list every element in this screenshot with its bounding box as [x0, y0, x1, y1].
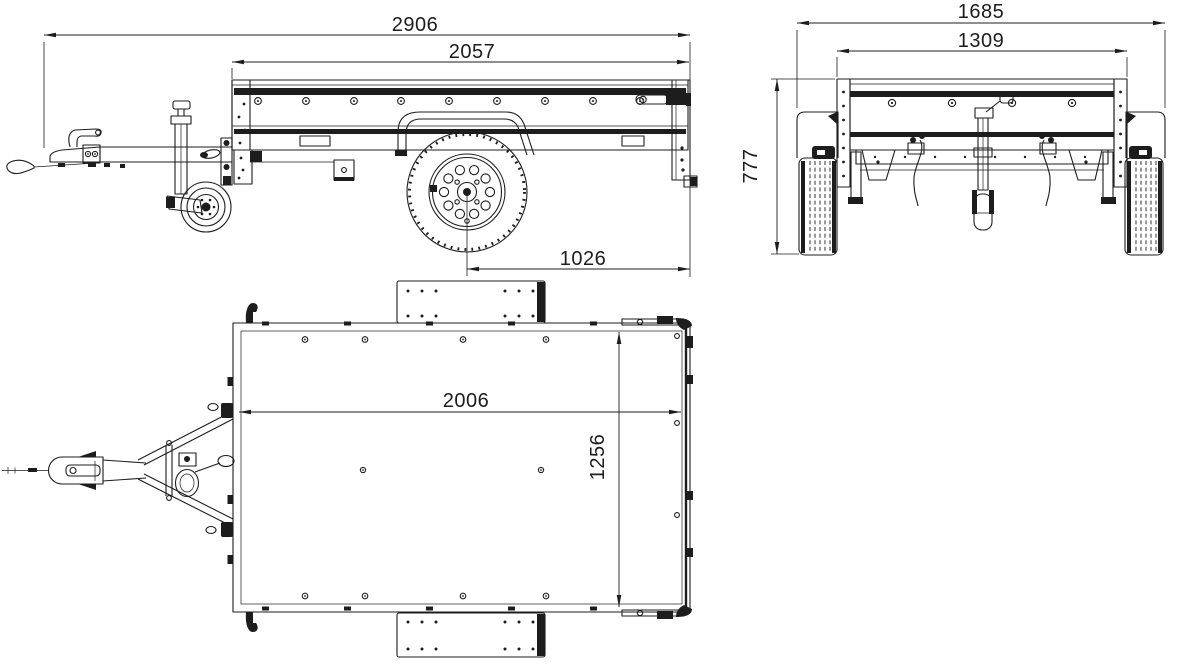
rear-chassis-frame	[848, 150, 1116, 204]
rear-overall-width-label: 1685	[958, 1, 1005, 23]
top-view: 2006 1256	[2, 281, 693, 657]
rear-dim-box-width: 1309	[837, 30, 1127, 77]
side-view: 2906 2057 1026	[7, 14, 697, 277]
technical-drawing-canvas: 2906 2057 1026	[0, 0, 1182, 667]
top-inner-width-label: 1256	[587, 434, 609, 481]
top-inner-length-label: 2006	[443, 390, 490, 412]
top-dim-inner-width: 1256	[587, 332, 619, 607]
rear-latch-right	[1039, 133, 1056, 206]
rear-box-body	[850, 79, 1114, 150]
rear-wheel-left	[799, 158, 837, 255]
side-box-length-label: 2057	[449, 41, 496, 63]
top-jockey-assembly	[176, 453, 235, 497]
rear-jockey-wheel	[972, 94, 1013, 230]
side-trailer-bed	[232, 80, 688, 150]
top-corner-latch-front-left	[246, 303, 258, 323]
side-dim-overall-length: 2906	[44, 14, 690, 277]
side-axle-to-rear-label: 1026	[560, 248, 607, 270]
rear-box-width-label: 1309	[958, 30, 1005, 52]
top-axle-plate-rear	[397, 613, 545, 657]
top-breakaway-cable	[2, 467, 49, 474]
rear-wheel-right	[1125, 158, 1163, 255]
side-tailgate-latch	[636, 93, 691, 106]
top-axle-plate-front	[397, 281, 545, 323]
side-coupler	[50, 129, 101, 163]
rear-overall-height-label: 777	[740, 149, 762, 184]
side-dim-box-length: 2057	[232, 41, 689, 79]
rear-view: 1685 1309 777	[740, 1, 1165, 255]
top-coupler	[49, 451, 147, 490]
top-dim-inner-length: 2006	[239, 390, 681, 412]
rear-dim-overall-height: 777	[740, 79, 835, 254]
side-bed-bolts	[255, 98, 644, 105]
trailer-drawing: 2906 2057 1026	[0, 0, 1182, 667]
top-box	[228, 322, 694, 613]
side-dim-axle-to-rear: 1026	[467, 192, 690, 276]
top-corner-latch-rear-left	[246, 612, 258, 632]
rear-latch-left	[908, 133, 925, 206]
side-overall-length-label: 2906	[392, 14, 439, 36]
